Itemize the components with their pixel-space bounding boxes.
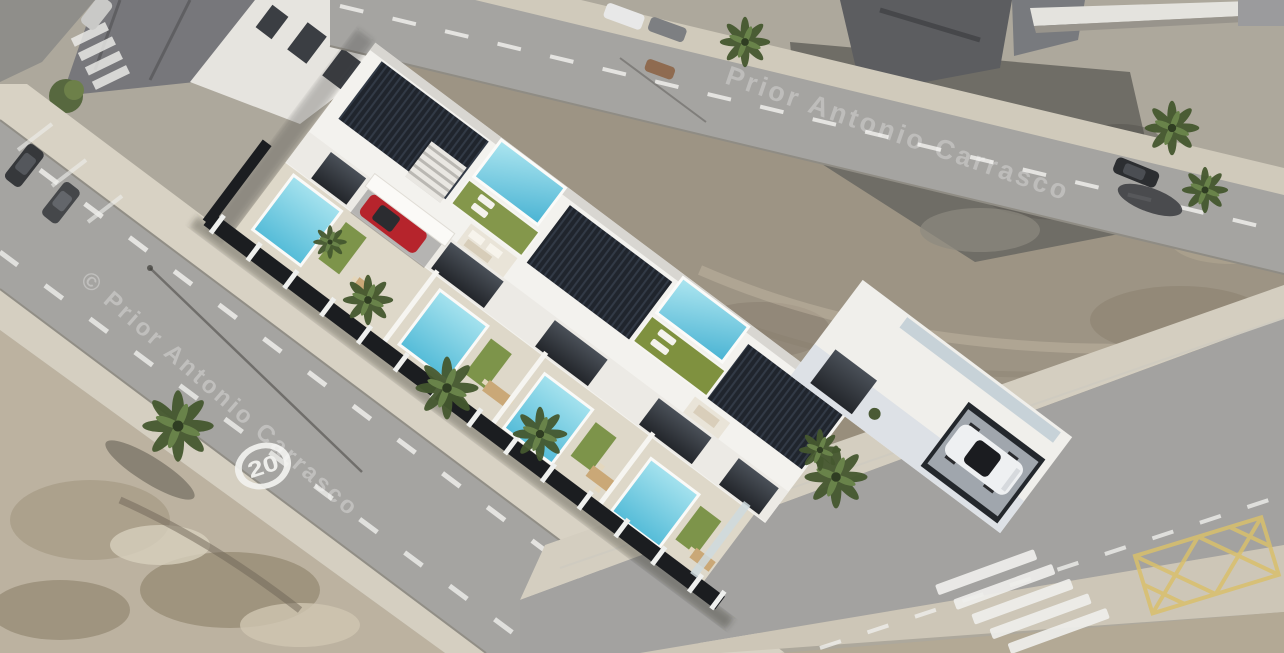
scene-canvas: 20 Prior Antonio Carrasco © Prior Antoni… <box>0 0 1284 653</box>
aerial-architectural-render: 20 Prior Antonio Carrasco © Prior Antoni… <box>0 0 1284 653</box>
